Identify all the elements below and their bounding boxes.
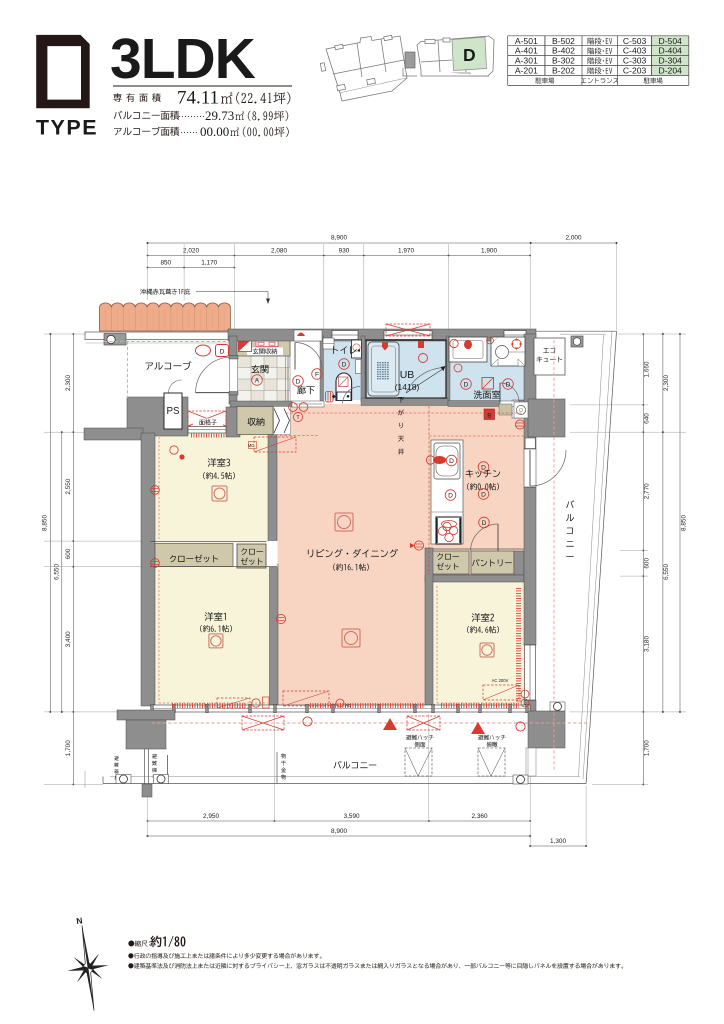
svg-text:D: D	[296, 378, 301, 385]
svg-text:640: 640	[644, 413, 651, 424]
svg-text:N: N	[76, 915, 83, 926]
svg-text:C-503: C-503	[623, 36, 647, 46]
svg-text:29.73: 29.73	[205, 108, 234, 123]
svg-text:UB: UB	[400, 369, 415, 381]
svg-text:PS: PS	[166, 406, 180, 417]
svg-text:2,770: 2,770	[644, 483, 651, 499]
svg-text:TYPE: TYPE	[36, 116, 98, 140]
svg-text:1,900: 1,900	[481, 248, 497, 255]
svg-text:2,300: 2,300	[663, 375, 670, 391]
svg-text:2,020: 2,020	[183, 248, 199, 255]
svg-text:1,170: 1,170	[201, 260, 217, 267]
svg-text:A-301: A-301	[515, 56, 538, 66]
svg-text:1,660: 1,660	[644, 361, 651, 377]
svg-text:AC 200V: AC 200V	[492, 678, 509, 683]
svg-text:C-203: C-203	[623, 66, 647, 76]
svg-text:8,850: 8,850	[681, 515, 688, 531]
svg-text:(1418): (1418)	[395, 382, 420, 392]
svg-text:D: D	[481, 491, 486, 498]
svg-text:AC: AC	[345, 703, 351, 708]
svg-text:1,700: 1,700	[644, 740, 651, 756]
svg-text:C-403: C-403	[623, 46, 647, 56]
svg-text:D-304: D-304	[658, 56, 682, 66]
svg-text:D: D	[482, 520, 487, 527]
svg-text:2,550: 2,550	[65, 478, 72, 494]
svg-text:D-404: D-404	[658, 46, 682, 56]
svg-text:D: D	[220, 349, 225, 356]
svg-text:D: D	[449, 458, 454, 465]
svg-text:A-501: A-501	[515, 36, 538, 46]
svg-text:D-504: D-504	[658, 36, 682, 46]
svg-text:B-502: B-502	[552, 36, 575, 46]
svg-text:74.11: 74.11	[177, 88, 219, 109]
svg-text:B-202: B-202	[552, 66, 575, 76]
svg-text:······: ······	[180, 127, 198, 137]
svg-text:8,900: 8,900	[331, 828, 347, 835]
svg-text:A-401: A-401	[515, 46, 538, 56]
svg-text:600: 600	[65, 548, 72, 559]
svg-text:F: F	[315, 371, 319, 378]
svg-text:8,900: 8,900	[331, 235, 347, 242]
svg-text:D-204: D-204	[658, 66, 682, 76]
svg-text:930: 930	[339, 248, 350, 255]
svg-text:3,180: 3,180	[644, 636, 651, 652]
svg-text:600: 600	[644, 558, 651, 569]
svg-text:00.00: 00.00	[200, 124, 229, 139]
svg-text:D: D	[448, 492, 453, 499]
svg-text:2,000: 2,000	[566, 235, 582, 242]
svg-text:3LDK: 3LDK	[110, 27, 256, 91]
svg-text:D: D	[506, 381, 511, 388]
svg-text:3,590: 3,590	[344, 813, 360, 820]
svg-text:2,300: 2,300	[65, 375, 72, 391]
svg-text:D: D	[463, 45, 476, 65]
svg-text:2,950: 2,950	[203, 813, 219, 820]
svg-text:A-201: A-201	[515, 66, 538, 76]
svg-text:2,360: 2,360	[472, 813, 488, 820]
svg-text:D: D	[464, 381, 469, 388]
svg-text:6,550: 6,550	[54, 564, 61, 580]
svg-text:A: A	[255, 377, 260, 384]
svg-text:6,550: 6,550	[663, 564, 670, 580]
svg-text:3,400: 3,400	[65, 631, 72, 647]
svg-text:2,080: 2,080	[271, 248, 287, 255]
svg-text:1,970: 1,970	[398, 248, 414, 255]
svg-text:850: 850	[160, 260, 171, 267]
svg-text:1,700: 1,700	[65, 740, 72, 756]
svg-text:D: D	[481, 464, 486, 471]
svg-text:B-402: B-402	[552, 46, 575, 56]
svg-text:B: B	[487, 413, 491, 420]
svg-text:·········: ·········	[178, 111, 205, 121]
svg-text:8,850: 8,850	[42, 515, 49, 531]
svg-text:C-303: C-303	[623, 56, 647, 66]
svg-text:B-302: B-302	[552, 56, 575, 66]
svg-text:D: D	[342, 361, 347, 368]
svg-text:1,300: 1,300	[550, 838, 566, 845]
